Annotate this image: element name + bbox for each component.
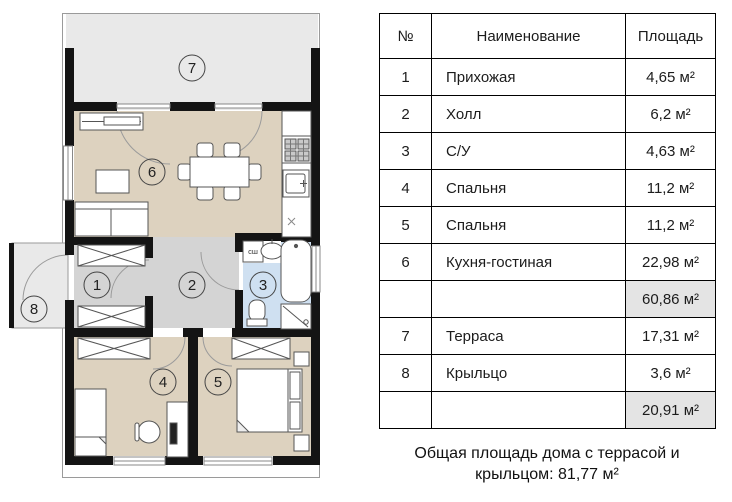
table-row: 7 Терраса 17,31 м² — [380, 318, 716, 355]
table-row: 3 С/У 4,63 м² — [380, 133, 716, 170]
wardrobe-bedroom4 — [78, 338, 150, 359]
row-area: 11,2 м² — [626, 207, 716, 244]
table-row: 2 Холл 6,2 м² — [380, 96, 716, 133]
row-area: 4,63 м² — [626, 133, 716, 170]
table-row: 8 Крыльцо 3,6 м² — [380, 355, 716, 392]
row-area: 6,2 м² — [626, 96, 716, 133]
row-name: Спальня — [432, 170, 626, 207]
svg-text:3: 3 — [259, 277, 267, 294]
kitchen-counter — [282, 111, 311, 237]
bath-sink — [261, 243, 283, 259]
desk-chair — [135, 421, 160, 443]
row-name — [432, 281, 626, 318]
svg-text:5: 5 — [214, 374, 222, 391]
bedroom-divider-wall — [188, 328, 198, 458]
dining-table — [190, 157, 249, 187]
row-num — [380, 392, 432, 429]
double-bed — [237, 369, 302, 432]
row-name: Кухня-гостиная — [432, 244, 626, 281]
header-num: № — [380, 14, 432, 59]
table-row: 4 Спальня 11,2 м² — [380, 170, 716, 207]
row-name: Крыльцо — [432, 355, 626, 392]
bathtub — [281, 240, 311, 302]
header-area: Площадь — [626, 14, 716, 59]
desk — [167, 402, 188, 457]
row-name: Терраса — [432, 318, 626, 355]
subtotal-row-outdoor: 20,91 м² — [380, 392, 716, 429]
subtotal-area: 20,91 м² — [626, 392, 716, 429]
svg-text:4: 4 — [159, 374, 167, 391]
tv-stand — [80, 113, 143, 130]
stove — [282, 136, 311, 163]
nightstand-bottom — [294, 435, 309, 451]
sofa — [75, 202, 148, 236]
floor-plan-drawing: сш 1 2 3 4 — [0, 0, 370, 502]
table-header-row: № Наименование Площадь — [380, 14, 716, 59]
row-area: 11,2 м² — [626, 170, 716, 207]
row-area: 3,6 м² — [626, 355, 716, 392]
svg-text:7: 7 — [188, 60, 196, 77]
row-num: 8 — [380, 355, 432, 392]
toilet — [247, 300, 267, 326]
area-table-section: № Наименование Площадь 1 Прихожая 4,65 м… — [379, 13, 715, 486]
nightstand-top — [294, 352, 309, 366]
caption-line-2: крыльцом: 81,77 м² — [379, 465, 715, 486]
wardrobe-bedroom5 — [232, 338, 290, 359]
base-strip — [66, 465, 319, 477]
terrace-wall-left — [65, 48, 74, 111]
single-bed — [75, 389, 106, 456]
row-name: Спальня — [432, 207, 626, 244]
terrace-wall-right — [311, 48, 320, 111]
area-table: № Наименование Площадь 1 Прихожая 4,65 м… — [379, 13, 716, 429]
row-name — [432, 392, 626, 429]
row-num — [380, 281, 432, 318]
kitchen-sink — [283, 170, 309, 197]
row-num: 4 — [380, 170, 432, 207]
table-row: 5 Спальня 11,2 м² — [380, 207, 716, 244]
page: сш 1 2 3 4 — [0, 0, 732, 502]
table-row: 6 Кухня-гостиная 22,98 м² — [380, 244, 716, 281]
row-name: С/У — [432, 133, 626, 170]
svg-text:6: 6 — [148, 164, 156, 181]
floor-plan: сш 1 2 3 4 — [0, 0, 370, 502]
row-num: 2 — [380, 96, 432, 133]
wardrobe-hall-top — [78, 245, 145, 266]
row-area: 17,31 м² — [626, 318, 716, 355]
row-area: 4,65 м² — [626, 59, 716, 96]
caption-line-1: Общая площадь дома с террасой и — [379, 444, 715, 465]
coffee-table — [96, 170, 129, 193]
row-num: 7 — [380, 318, 432, 355]
row-num: 5 — [380, 207, 432, 244]
row-area: 22,98 м² — [626, 244, 716, 281]
washer-label: сш — [248, 247, 258, 256]
row-num: 3 — [380, 133, 432, 170]
terrace-glass-door2 — [215, 104, 262, 108]
svg-text:2: 2 — [188, 277, 196, 294]
subtotal-row-house: 60,86 м² — [380, 281, 716, 318]
subtotal-area: 60,86 м² — [626, 281, 716, 318]
svg-text:8: 8 — [30, 301, 38, 318]
table-row: 1 Прихожая 4,65 м² — [380, 59, 716, 96]
shower — [281, 304, 311, 329]
kitchen-cabinet — [282, 111, 311, 136]
wardrobe-hall-bottom — [78, 306, 145, 327]
svg-text:1: 1 — [93, 277, 101, 294]
row-name: Холл — [432, 96, 626, 133]
terrace-glass-door1 — [117, 104, 170, 108]
total-area-caption: Общая площадь дома с террасой и крыльцом… — [379, 444, 715, 486]
porch-wall — [9, 243, 14, 328]
row-num: 1 — [380, 59, 432, 96]
row-name: Прихожая — [432, 59, 626, 96]
header-name: Наименование — [432, 14, 626, 59]
row-num: 6 — [380, 244, 432, 281]
